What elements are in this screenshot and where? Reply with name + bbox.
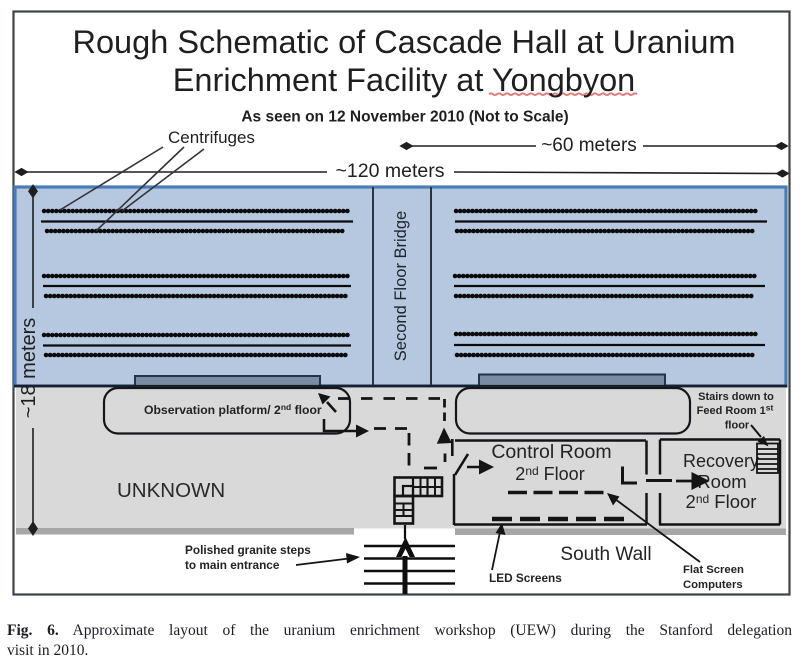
svg-text:Observation platform/ 2nd floo: Observation platform/ 2nd floor (144, 402, 322, 417)
svg-text:South Wall: South Wall (560, 544, 651, 565)
svg-text:~18 meters: ~18 meters (18, 318, 40, 419)
svg-text:~120 meters: ~120 meters (336, 160, 445, 182)
svg-text:Recovery: Recovery (683, 451, 759, 471)
svg-text:UNKNOWN: UNKNOWN (117, 479, 225, 502)
svg-text:Second Floor Bridge: Second Floor Bridge (392, 211, 410, 361)
svg-text:Enrichment Facility at Yongbyo: Enrichment Facility at Yongbyon (173, 62, 636, 98)
svg-text:Centrifuges: Centrifuges (168, 128, 255, 147)
svg-text:Rough Schematic of Cascade Hal: Rough Schematic of Cascade Hall at Urani… (73, 24, 736, 60)
svg-text:As seen on 12 November 2010 (N: As seen on 12 November 2010 (Not to Scal… (241, 109, 568, 126)
svg-text:Polished granite steps: Polished granite steps (185, 543, 311, 557)
svg-text:~60 meters: ~60 meters (541, 135, 637, 156)
svg-text:Stairs down to: Stairs down to (698, 391, 774, 403)
svg-text:Control Room: Control Room (491, 441, 611, 463)
svg-text:Computers: Computers (683, 579, 743, 591)
svg-text:to main entrance: to main entrance (185, 558, 280, 572)
svg-text:Flat Screen: Flat Screen (683, 564, 744, 576)
svg-text:LED Screens: LED Screens (489, 571, 562, 585)
svg-text:Feed Room 1st: Feed Room 1st (697, 403, 774, 418)
svg-text:floor: floor (725, 420, 750, 432)
